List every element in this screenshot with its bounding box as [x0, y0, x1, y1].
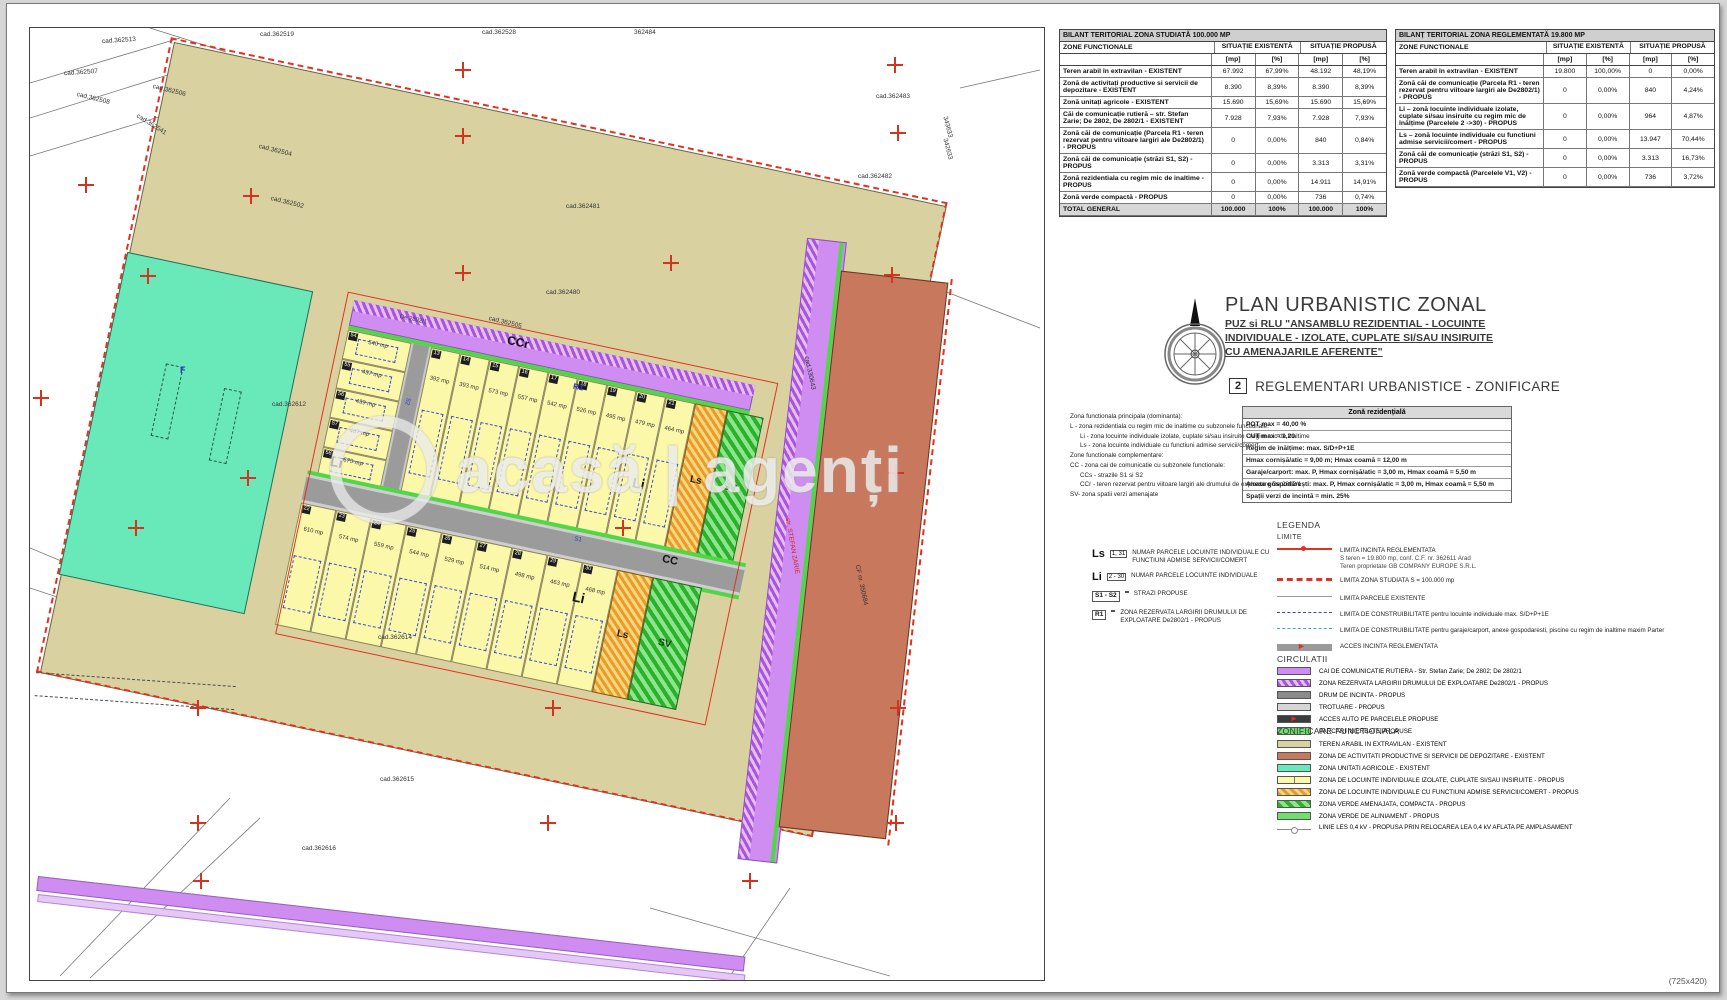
cadastral-label: cad.362519 [260, 32, 294, 39]
zonificare-legend: TEREN ARABIL IN EXTRAVILAN - EXISTENT ZO… [1277, 740, 1717, 835]
unit-header: [%] [1343, 54, 1386, 65]
legend-item: TROTUARE - PROPUS [1277, 703, 1717, 711]
legend-item: ZONA REZERVATA LARGIRII DRUMULUI DE EXPL… [1277, 679, 1717, 687]
value-proposed-pct: 0,74% [1343, 192, 1386, 203]
legend-item: ZONA DE LOCUINTE INDIVIDUALE CU FUNCTIUN… [1277, 788, 1717, 796]
swatch-icon [1277, 776, 1311, 784]
survey-cross-icon [887, 57, 903, 73]
legend-item: ZONA VERDE AMENAJATA, COMPACTA - PROPUS [1277, 800, 1717, 808]
legend-label: ZONA VERDE AMENAJATA, COMPACTA - PROPUS [1319, 801, 1465, 808]
value-existing-mp: 0 [1212, 154, 1256, 172]
value-existing-pct: 0,00% [1587, 168, 1630, 186]
table-row: Teren arabil în extravilan - EXISTENT 67… [1060, 66, 1386, 78]
legend-item: ACCES INCINTA REGLEMENTATA [1277, 643, 1707, 651]
row-label: Teren arabil în extravilan - EXISTENT [1396, 66, 1544, 77]
legend-range: 1, 31 [1110, 550, 1127, 558]
regulation-line: POT max = 40,00 % [1243, 419, 1511, 431]
value-existing-pct: 7,93% [1256, 109, 1300, 127]
row-label: Teren arabil în extravilan - EXISTENT [1060, 66, 1212, 77]
survey-cross-icon [190, 815, 206, 831]
legend-note: S teren = 19.800 mp, conf. C.F. nr. 3626… [1340, 555, 1477, 563]
unit-header: [%] [1256, 54, 1300, 65]
survey-cross-icon [890, 700, 906, 716]
value-existing-pct: 0,00% [1256, 173, 1300, 191]
row-label: Zonă căi de comunicație (Parcela R1 - te… [1060, 128, 1212, 153]
legend-item: TEREN ARABIL IN EXTRAVILAN - EXISTENT [1277, 740, 1717, 748]
limits-legend: LIMITA INCINTA REGLEMENTATA S teren = 19… [1277, 547, 1707, 658]
value-proposed-pct: 8,39% [1343, 78, 1386, 96]
col-header: ZONE FUNCTIONALE [1060, 42, 1215, 53]
value-proposed-mp: 3.313 [1630, 149, 1673, 167]
legend-item: Li 2 - 30 NUMAR PARCELE LOCUINTE INDIVID… [1092, 572, 1282, 583]
table-row: Zonă de activitați productive si servici… [1060, 78, 1386, 97]
value-existing-mp: 67.992 [1212, 66, 1256, 77]
row-label: Zonă căi de comunicație (Parcela R1 - te… [1396, 78, 1544, 103]
legend-label: LIMITA PARCELE EXISTENTE [1340, 595, 1425, 603]
col-header: ZONE FUNCTIONALE [1396, 42, 1547, 53]
table-row: Zonă unitați agricole - EXISTENT 15.690 … [1060, 97, 1386, 109]
value-proposed-mp: 3.313 [1299, 154, 1343, 172]
legend-item: ZONA VERDE DE ALINIAMENT - PROPUS [1277, 812, 1717, 820]
swatch-icon [1277, 800, 1311, 808]
legend-item: ZONA DE LOCUINTE INDIVIDUALE IZOLATE, CU… [1277, 776, 1717, 784]
table-row: Căi de comunicație rutieră – str. Stefan… [1060, 109, 1386, 128]
table-title: BILANȚ TERITORIAL ZONA REGLEMENTATĂ 19.8… [1396, 30, 1714, 42]
table-row: Zonă rezidentiala cu regim mic de inalti… [1060, 173, 1386, 192]
swatch-icon [1277, 752, 1311, 760]
survey-cross-icon [78, 177, 94, 193]
limit-line-icon [1277, 628, 1332, 637]
swatch-icon [1277, 812, 1311, 820]
value-existing-pct: 67,99% [1256, 66, 1300, 77]
legend-label: LIMITA INCINTA REGLEMENTATA S teren = 19… [1340, 547, 1477, 571]
limit-line-icon [1277, 578, 1332, 589]
farm-building-outline [151, 363, 184, 439]
survey-cross-icon [545, 700, 561, 716]
regulation-line: Hmax cornișă/atic = 9,00 m; Hmax coamă =… [1243, 455, 1511, 467]
legend-item: LIMITA DE CONSTRUIBILITATE pentru garaje… [1277, 627, 1707, 637]
table-row: Zonă căi de comunicație (străzi S1, S2) … [1396, 149, 1714, 168]
value-existing-pct: 0,00% [1587, 130, 1630, 148]
table-row: Zonă verde compactă - PROPUS 0 0,00% 736… [1060, 192, 1386, 204]
sheet-number-row: 2 REGLEMENTARI URBANISTICE - ZONIFICARE [1229, 378, 1560, 394]
table-row: Zonă căi de comunicație (străzi S1, S2) … [1060, 154, 1386, 173]
compass-rose-icon [1157, 296, 1233, 388]
value-proposed-mp: 736 [1299, 192, 1343, 203]
survey-cross-icon [888, 815, 904, 831]
survey-cross-icon [455, 62, 471, 78]
cadastral-label: cad.362528 [482, 30, 516, 37]
survey-cross-icon [888, 465, 904, 481]
survey-cross-icon [742, 873, 758, 889]
value-existing-pct: 15,69% [1256, 97, 1300, 108]
value-existing-pct: 0,00% [1587, 78, 1630, 103]
regulation-line: CUT max = 1,20 [1243, 431, 1511, 443]
legend-label: ZONA DE ACTIVITATI PRODUCTIVE SI SERVICI… [1319, 753, 1545, 760]
value-proposed-mp: 840 [1630, 78, 1673, 103]
value-existing-pct: 100% [1256, 204, 1300, 215]
table-rows: Teren arabil în extravilan - EXISTENT 67… [1060, 66, 1386, 216]
legend-label: STRAZI PROPUSE [1134, 590, 1188, 598]
swatch-icon [1277, 703, 1311, 711]
value-existing-mp: 7.928 [1212, 109, 1256, 127]
swatch-icon [1277, 691, 1311, 699]
legend-label: ZONA VERDE DE ALINIAMENT - PROPUS [1319, 813, 1439, 820]
survey-cross-icon [240, 470, 256, 486]
value-proposed-mp: 48.192 [1299, 66, 1343, 77]
sheet-title: REGLEMENTARI URBANISTICE - ZONIFICARE [1255, 379, 1560, 394]
title-block: PLAN URBANISTIC ZONAL PUZ si RLU "ANSAMB… [1225, 294, 1605, 360]
row-label: Li – zonă locuinte individuale izolate, … [1396, 104, 1544, 129]
value-existing-pct: 0,00% [1256, 128, 1300, 153]
value-existing-mp: 0 [1544, 168, 1587, 186]
swatch-icon [1277, 829, 1311, 830]
legend-label: ACCES INCINTA REGLEMENTATA [1340, 643, 1438, 651]
col-header: SITUAȚIE PROPUSĂ [1631, 42, 1714, 53]
legend-label: LIMITA ZONA STUDIATA S = 100.000 mp [1340, 577, 1454, 585]
legend-label: ZONA REZERVATA LARGIRII DRUMULUI DE EXPL… [1319, 680, 1548, 687]
value-proposed-mp: 14.911 [1299, 173, 1343, 191]
swatch-icon [1277, 679, 1311, 687]
regulations-header: Zonă rezidențială [1243, 407, 1511, 419]
unit-header: [mp] [1299, 54, 1343, 65]
legend-item: Ls 1, 31 NUMAR PARCELE LOCUINTE INDIVIDU… [1092, 549, 1282, 565]
row-label: Zonă de activitați productive si servici… [1060, 78, 1212, 96]
table-row: Zonă verde compactă (Parcelele V1, V2) -… [1396, 168, 1714, 187]
value-proposed-pct: 4,87% [1672, 104, 1714, 129]
plan-subtitle-line: CU AMENAJARILE AFERENTE" [1225, 345, 1605, 359]
unit-header: [%] [1587, 54, 1630, 65]
table-row: Zonă căi de comunicație (Parcela R1 - te… [1396, 78, 1714, 104]
row-label: Căi de comunicație rutieră – str. Stefan… [1060, 109, 1212, 127]
value-existing-pct: 0,00% [1587, 149, 1630, 167]
legend-range [1125, 591, 1129, 593]
value-existing-mp: 0 [1544, 78, 1587, 103]
legend-item: LINIE LES 0,4 kV - PROPUSA PRIN RELOCARE… [1277, 824, 1717, 831]
cadastral-label: F [180, 366, 186, 375]
legend-range [1111, 610, 1115, 612]
value-existing-mp: 0 [1212, 173, 1256, 191]
row-label: Zonă unitați agricole - EXISTENT [1060, 97, 1212, 108]
value-proposed-mp: 0 [1630, 66, 1673, 77]
survey-cross-icon [455, 265, 471, 281]
cadastral-label: 362484 [634, 30, 656, 37]
legend-item: ZONA DE ACTIVITATI PRODUCTIVE SI SERVICI… [1277, 752, 1717, 760]
table-row: Li – zonă locuinte individuale izolate, … [1396, 104, 1714, 130]
legend-label: ZONA DE LOCUINTE INDIVIDUALE IZOLATE, CU… [1319, 777, 1564, 784]
value-existing-pct: 0,00% [1256, 192, 1300, 203]
legend-label: CAI DE COMUNICATIE RUTIERA - Str. Stefan… [1319, 668, 1522, 675]
legend-item: S1 - S2 STRAZI PROPUSE [1092, 590, 1282, 602]
swatch-icon [1277, 667, 1311, 675]
value-proposed-mp: 840 [1299, 128, 1343, 153]
survey-cross-icon [243, 188, 259, 204]
plan-subtitle: PUZ si RLU "ANSAMBLU REZIDENTIAL - LOCUI… [1225, 317, 1605, 360]
value-proposed-pct: 3,31% [1343, 154, 1386, 172]
cadastral-label: cad.362483 [876, 94, 910, 101]
row-label: TOTAL GENERAL [1060, 204, 1212, 215]
value-proposed-mp: 964 [1630, 104, 1673, 129]
regulations-rows: POT max = 40,00 %CUT max = 1,20Regim de … [1243, 419, 1511, 502]
legend-label: TROTUARE - PROPUS [1319, 704, 1385, 711]
legend-item: LIMITA ZONA STUDIATA S = 100.000 mp [1277, 577, 1707, 589]
unit-header: [mp] [1212, 54, 1256, 65]
plan-sheet-stage: 54 540 mp 55 437 mp 56 439 mp 57 [0, 0, 1727, 1000]
cadastral-label: cad.362612 [272, 402, 306, 409]
row-label: Ls – zonă locuinte individuale cu functi… [1396, 130, 1544, 148]
value-existing-mp: 0 [1544, 130, 1587, 148]
legend-label: TEREN ARABIL IN EXTRAVILAN - EXISTENT [1319, 741, 1447, 748]
value-existing-mp: 8.390 [1212, 78, 1256, 96]
cadastral-label: cad.362616 [302, 846, 336, 853]
value-proposed-pct: 15,69% [1343, 97, 1386, 108]
legend-item: LIMITA INCINTA REGLEMENTATA S teren = 19… [1277, 547, 1707, 571]
row-label: Zonă verde compactă (Parcelele V1, V2) -… [1396, 168, 1544, 186]
legend-limits-title: LIMITE [1277, 534, 1302, 541]
row-label: Zonă rezidentiala cu regim mic de inalti… [1060, 173, 1212, 191]
value-existing-pct: 8,39% [1256, 78, 1300, 96]
value-proposed-pct: 7,93% [1343, 109, 1386, 127]
value-existing-pct: 0,00% [1256, 154, 1300, 172]
cadastral-label: cad.362482 [858, 174, 892, 181]
cadastral-label: cad.362614 [378, 635, 412, 642]
table-row: Ls – zonă locuinte individuale cu functi… [1396, 130, 1714, 149]
legend-item: LIMITA DE CONSTRUIBILITATE pentru locuin… [1277, 611, 1707, 621]
legend-range: 2 - 30 [1107, 573, 1126, 581]
legend-label: LINIE LES 0,4 kV - PROPUSA PRIN RELOCARE… [1319, 824, 1573, 831]
map-canvas: 54 540 mp 55 437 mp 56 439 mp 57 [29, 27, 1045, 981]
value-proposed-pct: 3,72% [1672, 168, 1714, 186]
value-proposed-mp: 13.947 [1630, 130, 1673, 148]
plan-subtitle-line: INDIVIDUALE - IZOLATE, CUPLATE SI/SAU IN… [1225, 331, 1605, 345]
legend-tag: Li [1092, 572, 1102, 583]
zonificare-title: ZONIFICARE FUNCTIONALA [1277, 726, 1400, 736]
value-proposed-pct: 0,00% [1672, 66, 1714, 77]
regulation-line: Regim de înălțime: max. S/D+P+1E [1243, 443, 1511, 455]
value-proposed-pct: 16,73% [1672, 149, 1714, 167]
value-proposed-pct: 4,24% [1672, 78, 1714, 103]
legend-label: ACCES AUTO PE PARCELELE PROPUSE [1319, 716, 1438, 723]
row-label: Zonă căi de comunicație (străzi S1, S2) … [1396, 149, 1544, 167]
sheet: 54 540 mp 55 437 mp 56 439 mp 57 [6, 3, 1720, 993]
survey-cross-icon [140, 268, 156, 284]
survey-cross-icon [190, 700, 206, 716]
value-proposed-pct: 70,44% [1672, 130, 1714, 148]
survey-cross-icon [455, 128, 471, 144]
parcel-number-legend: Ls 1, 31 NUMAR PARCELE LOCUINTE INDIVIDU… [1092, 549, 1282, 632]
value-proposed-mp: 15.690 [1299, 97, 1343, 108]
legend-tag: R1 [1092, 610, 1106, 621]
value-existing-mp: 100.000 [1212, 204, 1256, 215]
swatch-icon [1277, 764, 1311, 772]
survey-cross-icon [33, 390, 49, 406]
legend-item: DRUM DE INCINTA - PROPUS [1277, 691, 1717, 699]
value-proposed-mp: 100.000 [1299, 204, 1343, 215]
value-proposed-mp: 736 [1630, 168, 1673, 186]
legend-tag: Ls [1092, 549, 1105, 560]
value-proposed-pct: 100% [1343, 204, 1386, 215]
legend-item: ACCES AUTO PE PARCELELE PROPUSE [1277, 715, 1717, 723]
cadastral-label: cad.362480 [546, 290, 580, 297]
table-row: TOTAL GENERAL 100.000 100% 100.000 100% [1060, 204, 1386, 216]
value-proposed-pct: 14,91% [1343, 173, 1386, 191]
legend-item: R1 ZONA REZERVATA LARGIRII DRUMULUI DE E… [1092, 609, 1282, 625]
swatch-icon [1277, 715, 1311, 723]
value-existing-mp: 19.800 [1544, 66, 1587, 77]
limit-line-icon [1277, 644, 1332, 651]
swatch-icon [1277, 788, 1311, 796]
value-existing-pct: 100,00% [1587, 66, 1630, 77]
table-row: Zonă căi de comunicație (Parcela R1 - te… [1060, 128, 1386, 154]
regulation-line: Anexe gospodărești: max. P, Hmax cornișă… [1243, 479, 1511, 491]
value-proposed-mp: 7.928 [1299, 109, 1343, 127]
col-header: SITUAȚIE EXISTENTĂ [1547, 42, 1631, 53]
swatch-icon [1277, 740, 1311, 748]
limit-line-icon [1277, 596, 1332, 605]
legend-tag: S1 - S2 [1092, 591, 1120, 602]
zone-label: S1 [574, 536, 582, 543]
legend-label: NUMAR PARCELE LOCUINTE INDIVIDUALE CU FU… [1132, 549, 1282, 565]
survey-cross-icon [128, 520, 144, 536]
legend-item: LIMITA PARCELE EXISTENTE [1277, 595, 1707, 605]
limit-line-icon [1277, 548, 1332, 558]
table-row: Teren arabil în extravilan - EXISTENT 19… [1396, 66, 1714, 78]
value-existing-mp: 15.690 [1212, 97, 1256, 108]
legend-label: LIMITA DE CONSTRUIBILITATE pentru garaje… [1340, 627, 1664, 635]
cadastral-label: cad.362481 [566, 204, 600, 211]
value-existing-mp: 0 [1544, 149, 1587, 167]
legend-item: ZONA UNITATI AGRICOLE - EXISTENT [1277, 764, 1717, 772]
farm-building-outline [209, 388, 242, 464]
legend-label: LIMITA DE CONSTRUIBILITATE pentru locuin… [1340, 611, 1549, 619]
unit-header: [mp] [1544, 54, 1587, 65]
survey-cross-icon [540, 815, 556, 831]
unit-header: [%] [1672, 54, 1714, 65]
col-header: SITUAȚIE PROPUSĂ [1301, 42, 1386, 53]
row-label: Zonă căi de comunicație (străzi S1, S2) … [1060, 154, 1212, 172]
legend-label: ZONA DE LOCUINTE INDIVIDUALE CU FUNCTIUN… [1319, 789, 1579, 796]
table-title: BILANT TERITORIAL ZONA STUDIATĂ 100.000 … [1060, 30, 1386, 42]
regulation-line: Spații verzi de incintă = min. 25% [1243, 491, 1511, 502]
table-bilant-studiata: BILANT TERITORIAL ZONA STUDIATĂ 100.000 … [1059, 29, 1387, 217]
legend-label: ZONA UNITATI AGRICOLE - EXISTENT [1319, 765, 1430, 772]
paper-size-label: (725x420) [1669, 976, 1707, 986]
value-existing-pct: 0,00% [1587, 104, 1630, 129]
value-existing-mp: 0 [1212, 128, 1256, 153]
survey-cross-icon [890, 125, 906, 141]
value-proposed-mp: 8.390 [1299, 78, 1343, 96]
unit-header: [mp] [1630, 54, 1673, 65]
plan-subtitle-line: PUZ si RLU "ANSAMBLU REZIDENTIAL - LOCUI… [1225, 317, 1605, 331]
survey-cross-icon [615, 520, 631, 536]
circulatii-title: CIRCULATII [1277, 654, 1328, 664]
table-rows: Teren arabil în extravilan - EXISTENT 19… [1396, 66, 1714, 187]
col-header: SITUAȚIE EXISTENTĂ [1215, 42, 1301, 53]
survey-cross-icon [193, 873, 209, 889]
value-proposed-pct: 0,84% [1343, 128, 1386, 153]
value-proposed-pct: 48,19% [1343, 66, 1386, 77]
regulation-line: Garaje/carport: max. P, Hmax cornișă/ati… [1243, 467, 1511, 479]
legend-label: NUMAR PARCELE LOCUINTE INDIVIDUALE [1131, 572, 1257, 580]
plan-title: PLAN URBANISTIC ZONAL [1225, 294, 1605, 317]
sheet-number-badge: 2 [1229, 378, 1247, 394]
legend-item: CAI DE COMUNICATIE RUTIERA - Str. Stefan… [1277, 667, 1717, 675]
legend-note: Teren proprietate GB COMPANY EUROPE S.R.… [1340, 563, 1477, 571]
row-label: Zonă verde compactă - PROPUS [1060, 192, 1212, 203]
legend-label: ZONA REZERVATA LARGIRII DRUMULUI DE EXPL… [1120, 609, 1282, 625]
value-existing-mp: 0 [1212, 192, 1256, 203]
limit-line-icon [1277, 612, 1332, 621]
table-bilant-reglementata: BILANȚ TERITORIAL ZONA REGLEMENTATĂ 19.8… [1395, 29, 1715, 188]
legend-title: LEGENDA [1277, 520, 1320, 530]
cadastral-label: cad.362615 [380, 777, 414, 784]
legend-label: DRUM DE INCINTA - PROPUS [1319, 692, 1405, 699]
survey-cross-icon [663, 255, 679, 271]
regulations-box: Zonă rezidențială POT max = 40,00 %CUT m… [1242, 406, 1512, 503]
survey-cross-icon [884, 267, 900, 283]
value-existing-mp: 0 [1544, 104, 1587, 129]
